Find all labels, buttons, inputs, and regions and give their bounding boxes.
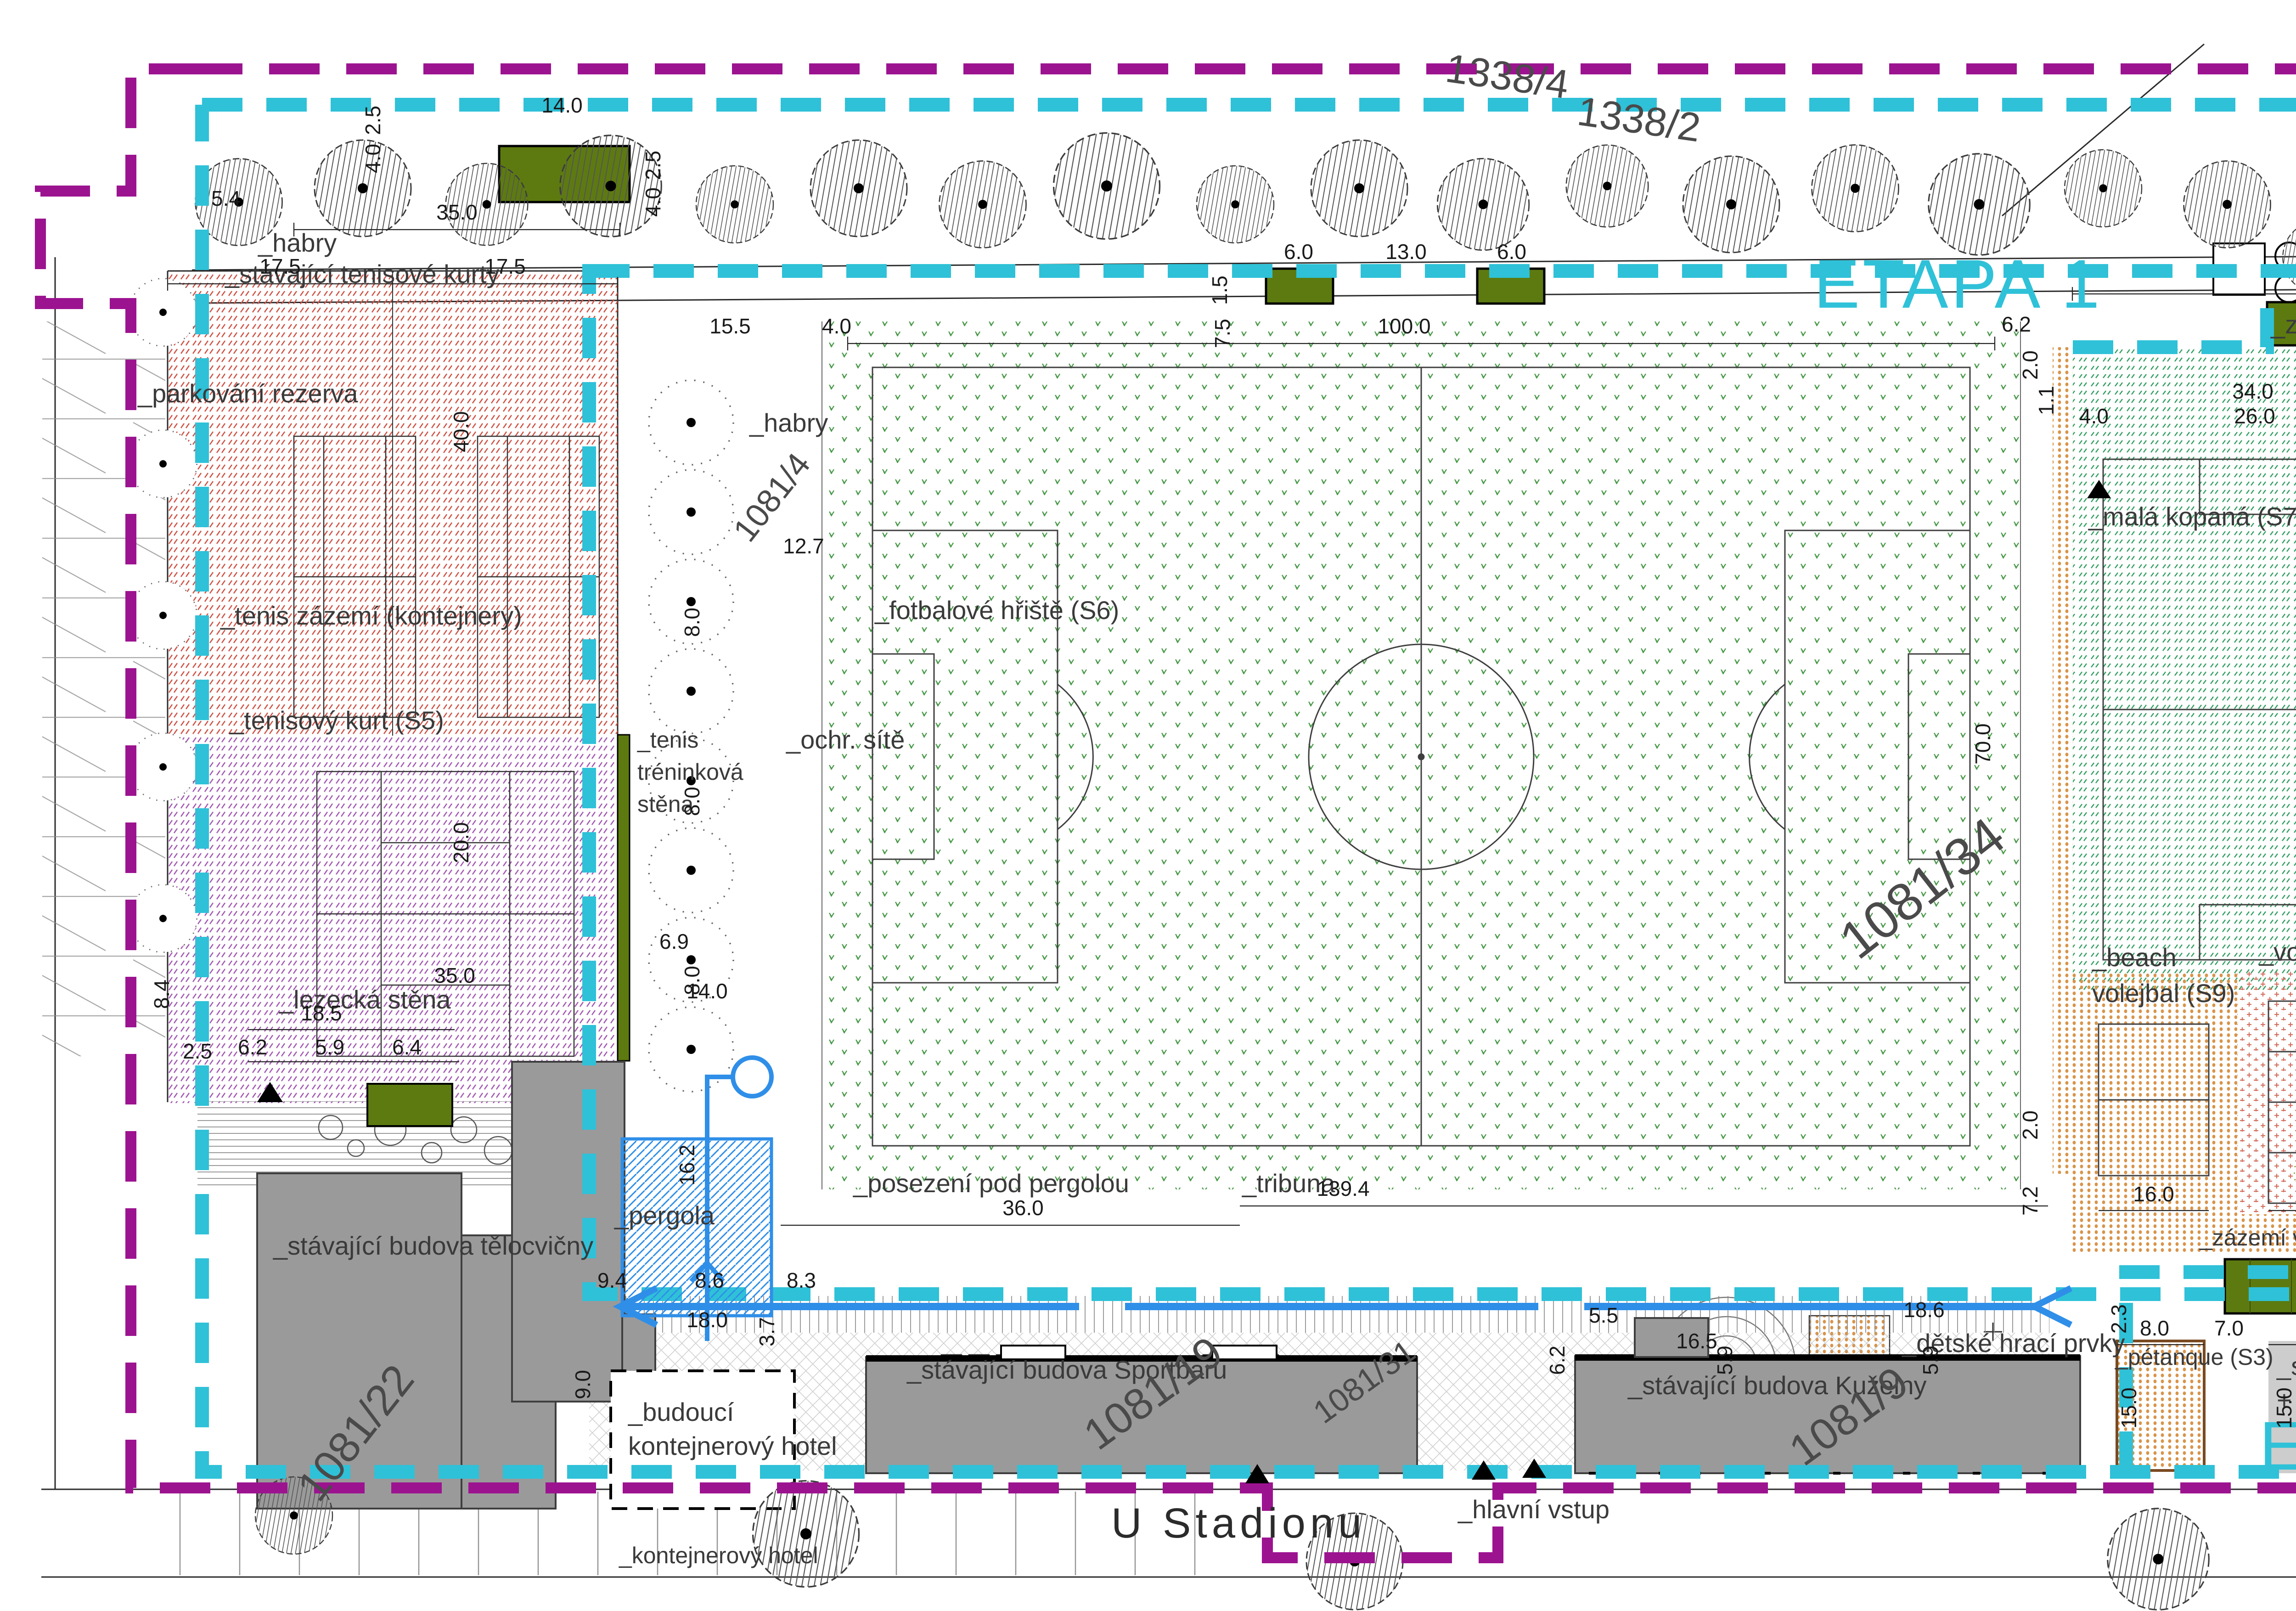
label-beach-2: volejbal (S9) <box>2092 979 2235 1008</box>
dim: 15.0 <box>2272 1387 2296 1429</box>
parcel-1081-4: 1081/4 <box>726 446 818 549</box>
label-hotel-1: _budoucí <box>628 1397 734 1426</box>
label-pergola: _pergola <box>614 1201 715 1230</box>
dim: 7.2 <box>2018 1186 2042 1216</box>
drawing-sheet: _habry _stávající tenisové kurty _parkov… <box>0 0 2296 1611</box>
label-volleyball: _volejbal (S8) <box>2259 937 2296 966</box>
dim: 35.0 <box>436 200 478 224</box>
dim: 16.0 <box>2133 1182 2174 1206</box>
label-habry-1: _habry <box>258 228 337 257</box>
dim: 18.0 <box>687 1308 728 1332</box>
dim: 70.0 <box>1971 723 1995 765</box>
dim: 34.0 <box>2232 379 2273 403</box>
label-mala-kopana: _malá kopaná (S7) <box>2088 502 2296 531</box>
dim: 2.0 <box>2018 350 2042 380</box>
dim: 2.0 <box>2018 1110 2042 1140</box>
dim: 5.9 <box>315 1035 344 1059</box>
dim: 6.4 <box>392 1035 422 1059</box>
dim: 18.5 <box>301 1001 342 1025</box>
dim: 1.5 <box>1208 276 1232 305</box>
mala-kopana-s7 <box>2073 347 2296 992</box>
label-zazemi-volejbal: _zázemí volejbal <box>2199 1225 2296 1250</box>
label-parking-west: _parkování rezerva <box>137 379 358 408</box>
dim: 4.0 <box>641 187 665 217</box>
label-etapa1-top: ETAPA 1 <box>1814 245 2102 322</box>
dim: 8.0 <box>2140 1316 2169 1340</box>
dim: 15.5 <box>709 314 751 338</box>
dim: 9.0 <box>571 1370 595 1399</box>
label-nets: _ochr. sítě <box>786 725 905 754</box>
dim: 14.0 <box>541 93 583 117</box>
dim: 35.0 <box>434 963 475 987</box>
label-wall-2: tréninková <box>637 759 743 785</box>
new-object-gym <box>367 1084 452 1126</box>
dim: 2.3 <box>2107 1304 2131 1334</box>
dim: 2.5 <box>361 106 385 135</box>
dim: 13.0 <box>1385 240 1427 264</box>
dim: 9.4 <box>597 1268 627 1292</box>
dim: 4.0 <box>361 144 385 173</box>
dim: 40.0 <box>449 411 473 452</box>
dim: 17.5 <box>259 254 301 278</box>
dim: 6.0 <box>1284 240 1313 264</box>
dim: 36.0 <box>1002 1196 1044 1220</box>
dim: 6.2 <box>238 1035 267 1059</box>
tennis-court-s5 <box>168 736 615 1103</box>
label-container-hotel: _kontejnerový hotel <box>619 1543 818 1568</box>
label-wall-1: _tenis <box>637 727 698 753</box>
dim: 3.7 <box>755 1317 779 1346</box>
dim: 8.6 <box>695 1268 724 1292</box>
label-habry-2: _habry <box>749 408 828 437</box>
label-street: U Stadionu <box>1111 1500 1366 1547</box>
label-gymnasium: _stávající budova tělocvičny <box>273 1231 593 1260</box>
dim: 2.5 <box>183 1039 212 1063</box>
beach-volleyball-s9 <box>2071 972 2237 1214</box>
label-beach-1: _beach <box>2092 943 2177 972</box>
mlat-strip <box>2053 347 2073 1174</box>
dim: 100.0 <box>1378 314 1430 338</box>
volleyball-s8 <box>2237 972 2296 1214</box>
dim: 5.9 <box>1919 1346 1942 1375</box>
label-zazemi-mk: _zázemí malá kopaná <box>2270 310 2296 339</box>
tennis-training-wall <box>618 735 630 1061</box>
label-streetball-1: _streetball (S11) <box>2276 1352 2296 1380</box>
dim: 26.0 <box>2234 404 2275 428</box>
label-petanque: _pétanque (S3) <box>2115 1344 2273 1370</box>
dim: 1.1 <box>2034 386 2058 415</box>
label-main-entrance: _hlavní vstup <box>1458 1495 1609 1524</box>
dim: 8.0 <box>680 608 704 637</box>
dim: 5.4 <box>211 186 241 210</box>
dim: 15.0 <box>2117 1387 2141 1429</box>
tribune-deck <box>589 1296 2049 1333</box>
label-hotel-2: kontejnerový hotel <box>628 1431 837 1460</box>
dim: 6.9 <box>659 929 689 953</box>
dim: 6.0 <box>1497 240 1526 264</box>
dim: 2.5 <box>641 151 665 180</box>
label-tennis-zazemi: _tenis zázemí (kontejnery) <box>220 601 522 630</box>
label-football: _fotbalové hřiště (S6) <box>874 596 1119 625</box>
dim: 4.0 <box>2079 404 2109 428</box>
label-tennis-s5: _tenisový kurt (S5) <box>229 706 444 735</box>
site-plan: _habry _stávající tenisové kurty _parkov… <box>0 0 2296 1611</box>
label-pergola-seating: _posezení pod pergolou <box>853 1169 1129 1198</box>
dim: 7.0 <box>2214 1316 2244 1340</box>
dim: 4.0 <box>822 314 851 338</box>
dim: 7.5 <box>1210 319 1234 348</box>
dim: 20.0 <box>449 822 473 863</box>
dim: 18.6 <box>1903 1298 1945 1322</box>
dim: 16.2 <box>675 1144 699 1186</box>
dim: 14.0 <box>687 979 728 1003</box>
dim: 5.5 <box>1589 1303 1618 1327</box>
dim: 6.2 <box>2002 312 2031 336</box>
dim: 139.4 <box>1317 1177 1369 1200</box>
dim: 8.3 <box>787 1268 816 1292</box>
dim: 8.0 <box>680 787 704 816</box>
dim: 8.4 <box>150 980 174 1009</box>
dim: 6.2 <box>1545 1346 1569 1375</box>
parcel-1338-2: 1338/2 <box>1575 88 1703 150</box>
dim: 12.7 <box>783 534 824 558</box>
dim: 17.5 <box>484 254 526 278</box>
dim: 16.5 <box>1676 1329 1717 1353</box>
